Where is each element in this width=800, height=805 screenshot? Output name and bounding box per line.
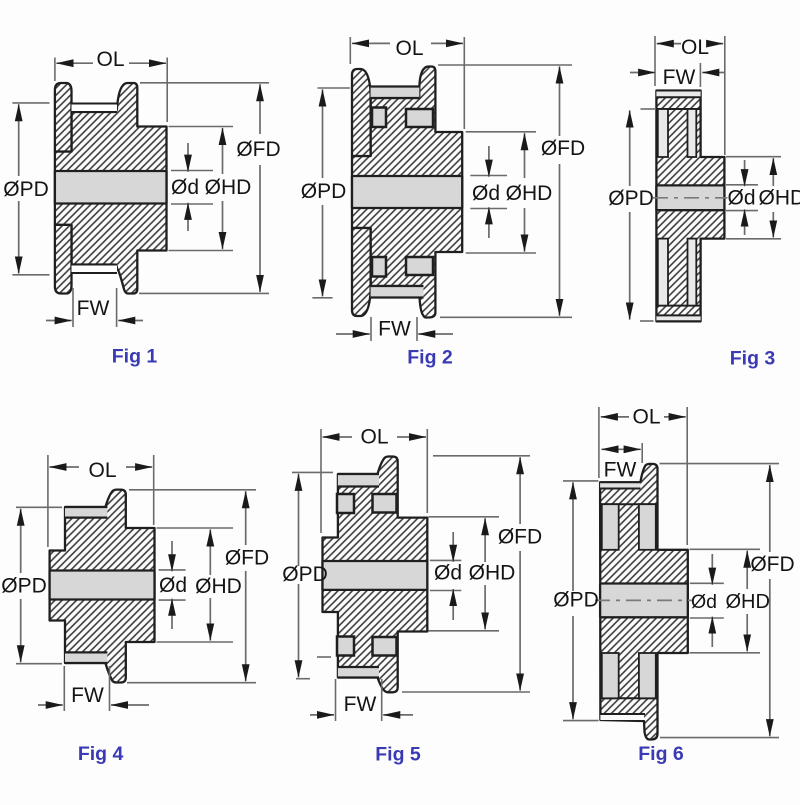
svg-text:ØPD: ØPD xyxy=(3,178,49,201)
svg-text:ØFD: ØFD xyxy=(541,137,585,160)
svg-text:Ød: Ød xyxy=(171,176,199,199)
svg-text:ØHD: ØHD xyxy=(726,591,770,613)
svg-text:OL: OL xyxy=(395,37,423,60)
svg-text:ØHD: ØHD xyxy=(506,182,553,205)
svg-text:Ød: Ød xyxy=(691,591,717,613)
svg-text:FW: FW xyxy=(71,684,104,707)
svg-text:Ød: Ød xyxy=(434,562,462,585)
svg-text:ØFD: ØFD xyxy=(498,526,542,549)
svg-text:Ød: Ød xyxy=(159,574,187,597)
svg-text:ØFD: ØFD xyxy=(225,547,269,570)
svg-text:OL: OL xyxy=(88,459,116,482)
svg-text:FW: FW xyxy=(378,318,411,341)
svg-text:OL: OL xyxy=(360,426,388,449)
svg-text:OL: OL xyxy=(632,406,660,429)
svg-text:ØHD: ØHD xyxy=(205,176,252,199)
svg-text:OL: OL xyxy=(96,48,124,71)
svg-text:Ød: Ød xyxy=(472,182,500,205)
svg-text:FW: FW xyxy=(663,66,696,89)
svg-text:OL: OL xyxy=(681,36,709,59)
svg-text:ØHD: ØHD xyxy=(759,186,800,209)
svg-text:ØPD: ØPD xyxy=(301,180,347,203)
svg-text:FW: FW xyxy=(77,297,110,320)
svg-text:Fig 1: Fig 1 xyxy=(112,345,158,367)
svg-text:Fig 2: Fig 2 xyxy=(407,346,453,368)
svg-text:ØHD: ØHD xyxy=(469,562,516,585)
svg-text:FW: FW xyxy=(344,693,377,716)
svg-text:ØHD: ØHD xyxy=(195,575,242,598)
svg-text:Fig 5: Fig 5 xyxy=(375,743,421,765)
svg-text:FW: FW xyxy=(604,459,637,482)
svg-text:Ød: Ød xyxy=(727,186,755,209)
svg-text:Fig 3: Fig 3 xyxy=(730,347,776,369)
svg-text:Fig 4: Fig 4 xyxy=(78,743,124,765)
svg-text:ØPD: ØPD xyxy=(1,575,47,598)
svg-text:ØPD: ØPD xyxy=(553,589,599,612)
svg-text:Fig 6: Fig 6 xyxy=(638,743,684,765)
svg-text:ØFD: ØFD xyxy=(236,138,280,161)
svg-text:ØPD: ØPD xyxy=(282,563,328,586)
svg-text:ØFD: ØFD xyxy=(750,553,794,576)
svg-text:ØPD: ØPD xyxy=(608,187,654,210)
